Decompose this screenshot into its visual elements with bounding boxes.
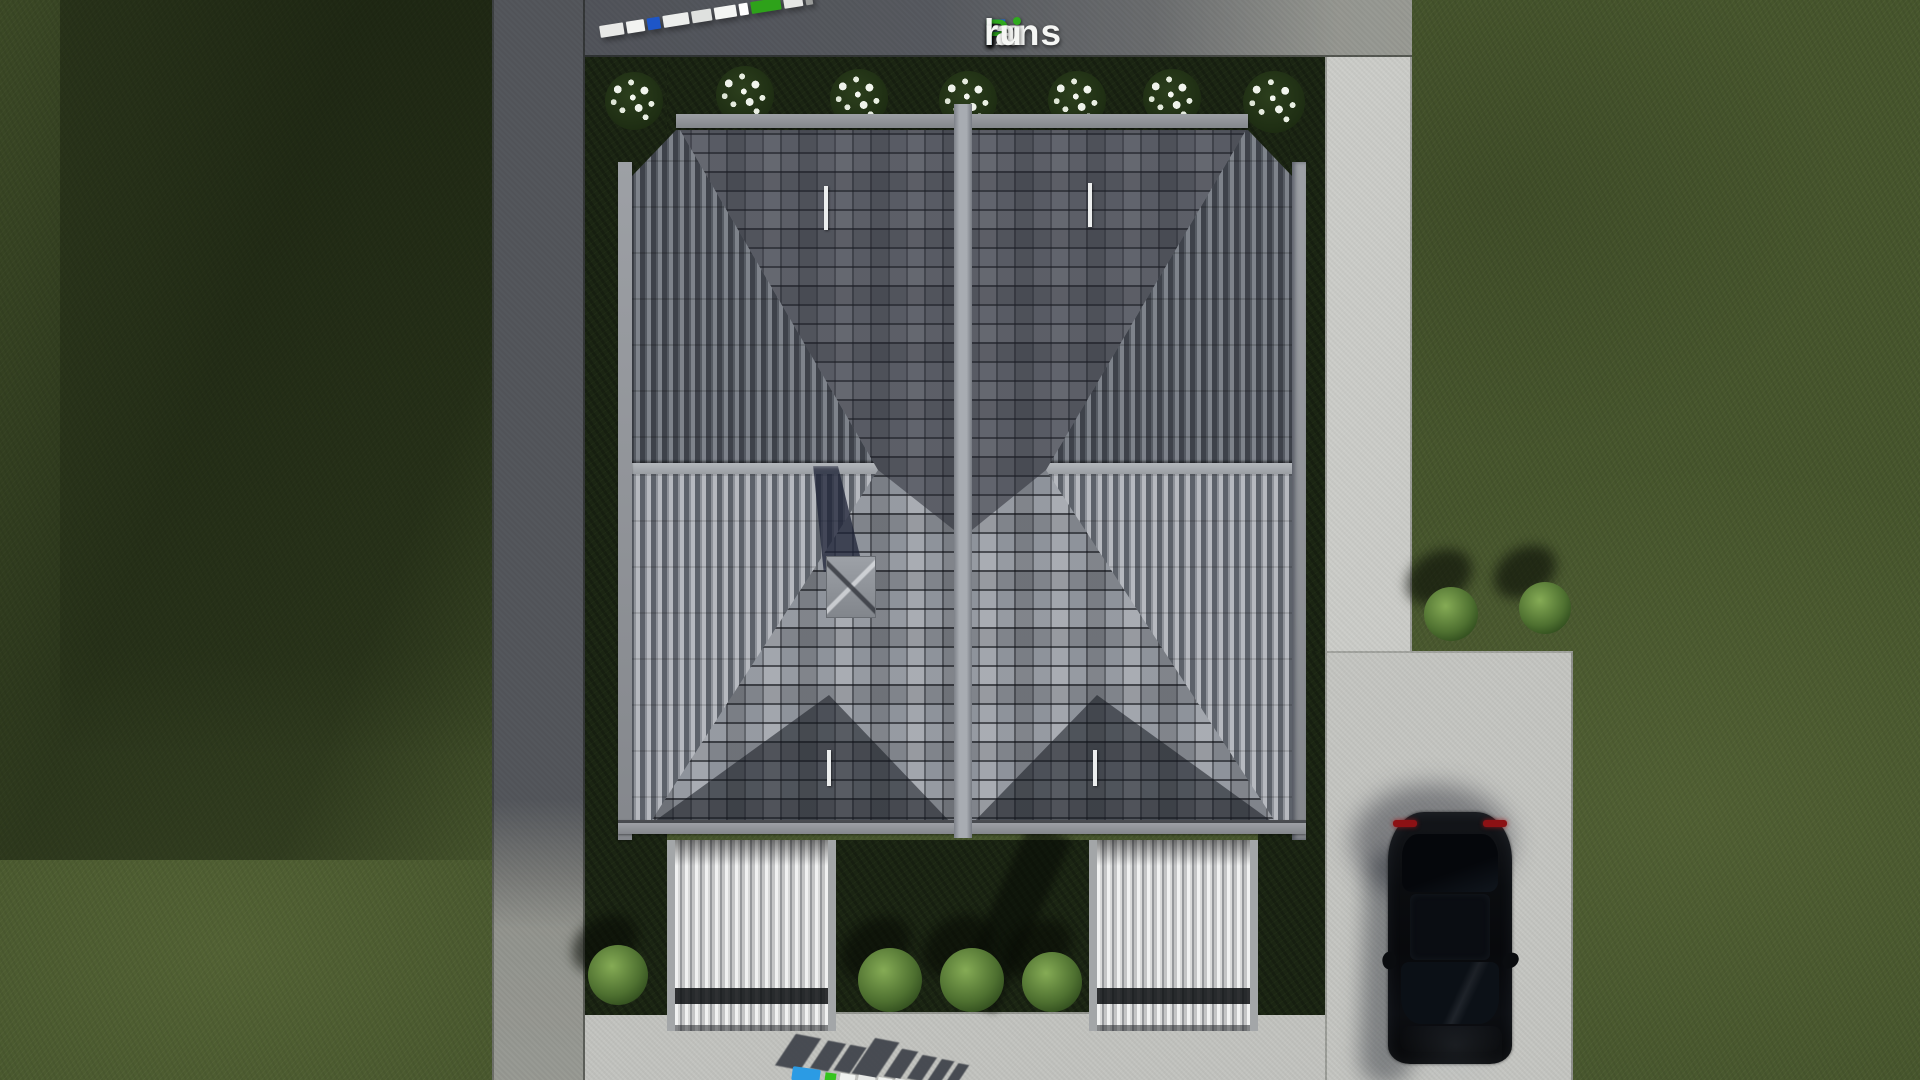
roof-vent [824, 186, 828, 230]
car-windshield [1401, 962, 1499, 1024]
green-bush [1022, 952, 1082, 1012]
porch-roof-left [667, 840, 836, 1031]
car-hood [1398, 1026, 1502, 1080]
car-body [1388, 812, 1512, 1064]
green-bush [858, 948, 922, 1012]
party-wall-ridge [954, 104, 972, 838]
roof-vent [827, 750, 831, 786]
porch-roof-right [1089, 840, 1258, 1031]
logo-i-dot [1013, 17, 1021, 25]
green-bush [940, 948, 1004, 1012]
chimney [826, 556, 876, 618]
aerial-house-render: FixPlans.ru [0, 0, 1920, 1080]
car-rear-window [1402, 834, 1498, 892]
taillight-right [1483, 820, 1507, 827]
roof-vent [1088, 183, 1092, 227]
green-bush [588, 945, 648, 1005]
tree-shadow-overlay-2 [60, 0, 505, 760]
fascia-west [618, 162, 632, 840]
taillight-left [1393, 820, 1417, 827]
path-left [492, 0, 585, 1080]
sign-letter-top-white [839, 1073, 855, 1080]
porch-gutter [1097, 1025, 1250, 1031]
sign-letter-top-green [824, 1072, 836, 1080]
duplex-roof [618, 108, 1306, 840]
parked-car [1350, 780, 1560, 1080]
roof-vent [1093, 750, 1097, 786]
car-roof [1410, 894, 1490, 960]
path-right [1325, 57, 1412, 653]
green-bush [1424, 587, 1478, 641]
fixplans-3d-sign-bottom [778, 1030, 1028, 1080]
porch-shadow-band [675, 988, 828, 1004]
fascia-east [1292, 162, 1306, 840]
porch-shadow-band [1097, 988, 1250, 1004]
green-bush [1519, 582, 1571, 634]
